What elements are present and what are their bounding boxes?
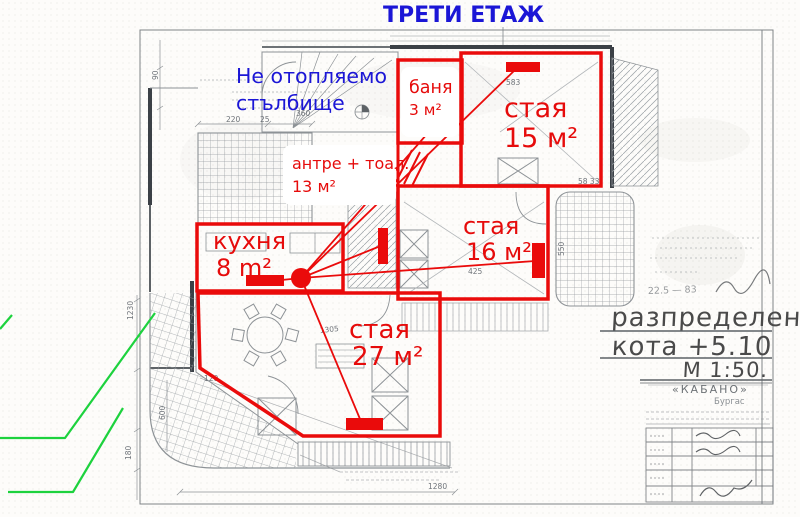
dim-text: 425	[468, 267, 483, 276]
room-label-antre-name: антре + тоал.	[292, 154, 409, 173]
radiator-staya15	[506, 62, 540, 72]
green-leader-upper	[0, 313, 155, 438]
radiator-staya27	[346, 418, 383, 430]
dim-text: 180	[124, 445, 133, 460]
dim-text: 600	[158, 405, 167, 420]
dim-text: 25	[260, 115, 270, 124]
green-leader-lower	[8, 408, 123, 492]
room-label-staya15-area: 15 м²	[504, 123, 578, 154]
dim-text: 90	[151, 70, 160, 80]
dining-table	[232, 304, 299, 366]
radiator-corridor	[378, 228, 388, 264]
legend-scale: М 1:50.	[682, 357, 769, 382]
dim-text: 550	[557, 241, 566, 256]
room-label-kuhnya-name: кухня	[213, 227, 286, 255]
room-label-antre-area: 13 м²	[292, 177, 336, 196]
room-label-staya16-name: стая	[463, 212, 519, 240]
dim-text: 583	[506, 78, 521, 87]
room-label-staya27-name: стая	[349, 315, 410, 345]
dim-text: 220	[226, 115, 241, 124]
green-leader-stub	[0, 315, 12, 329]
legend-city: Бургас	[714, 397, 745, 407]
room-label-banya-area: 3 м²	[409, 101, 442, 119]
green-marker-lines	[0, 313, 155, 492]
room-label-staya16-area: 16 м²	[466, 238, 532, 266]
radiator-staya16	[532, 243, 545, 278]
floor-plan-drawing: 220 25 583 360 1305 425 120 1280 1230 18…	[0, 0, 800, 517]
signature-table	[646, 428, 773, 502]
heating-hub-marker	[291, 268, 311, 288]
staircase-note-line1: Не отопляемо	[236, 64, 387, 88]
page-title: ТРЕТИ ЕТАЖ	[383, 3, 544, 28]
dim-text: 1280	[428, 482, 447, 491]
scanned-floor-plan-sheet: 220 25 583 360 1305 425 120 1280 1230 18…	[0, 0, 800, 517]
room-label-banya-name: баня	[409, 78, 453, 98]
dim-text: 1230	[126, 301, 135, 320]
legend-handnote: 22.5 — 83	[648, 284, 697, 297]
room-label-staya15-name: стая	[504, 93, 567, 124]
legend-title: разпределение	[611, 303, 800, 333]
room-label-kuhnya-area: 8 m²	[216, 254, 272, 282]
room-label-staya27-area: 27 м²	[352, 342, 423, 372]
staircase-note-line2: стълбище	[236, 91, 345, 115]
